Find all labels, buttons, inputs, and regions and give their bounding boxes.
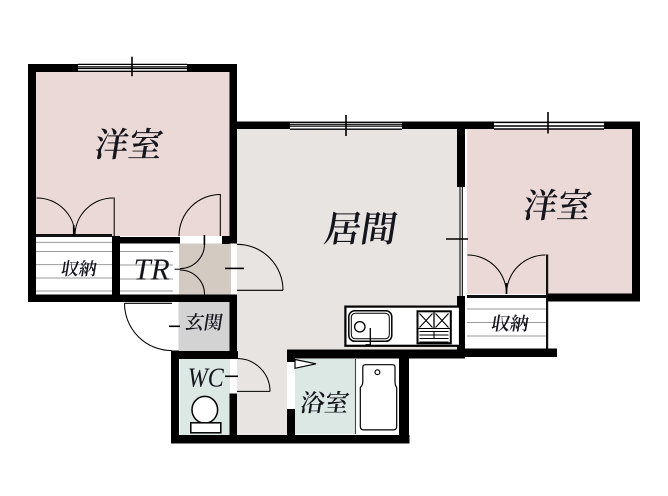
svg-text:WC: WC [188,362,225,392]
svg-text:TR: TR [134,252,170,287]
